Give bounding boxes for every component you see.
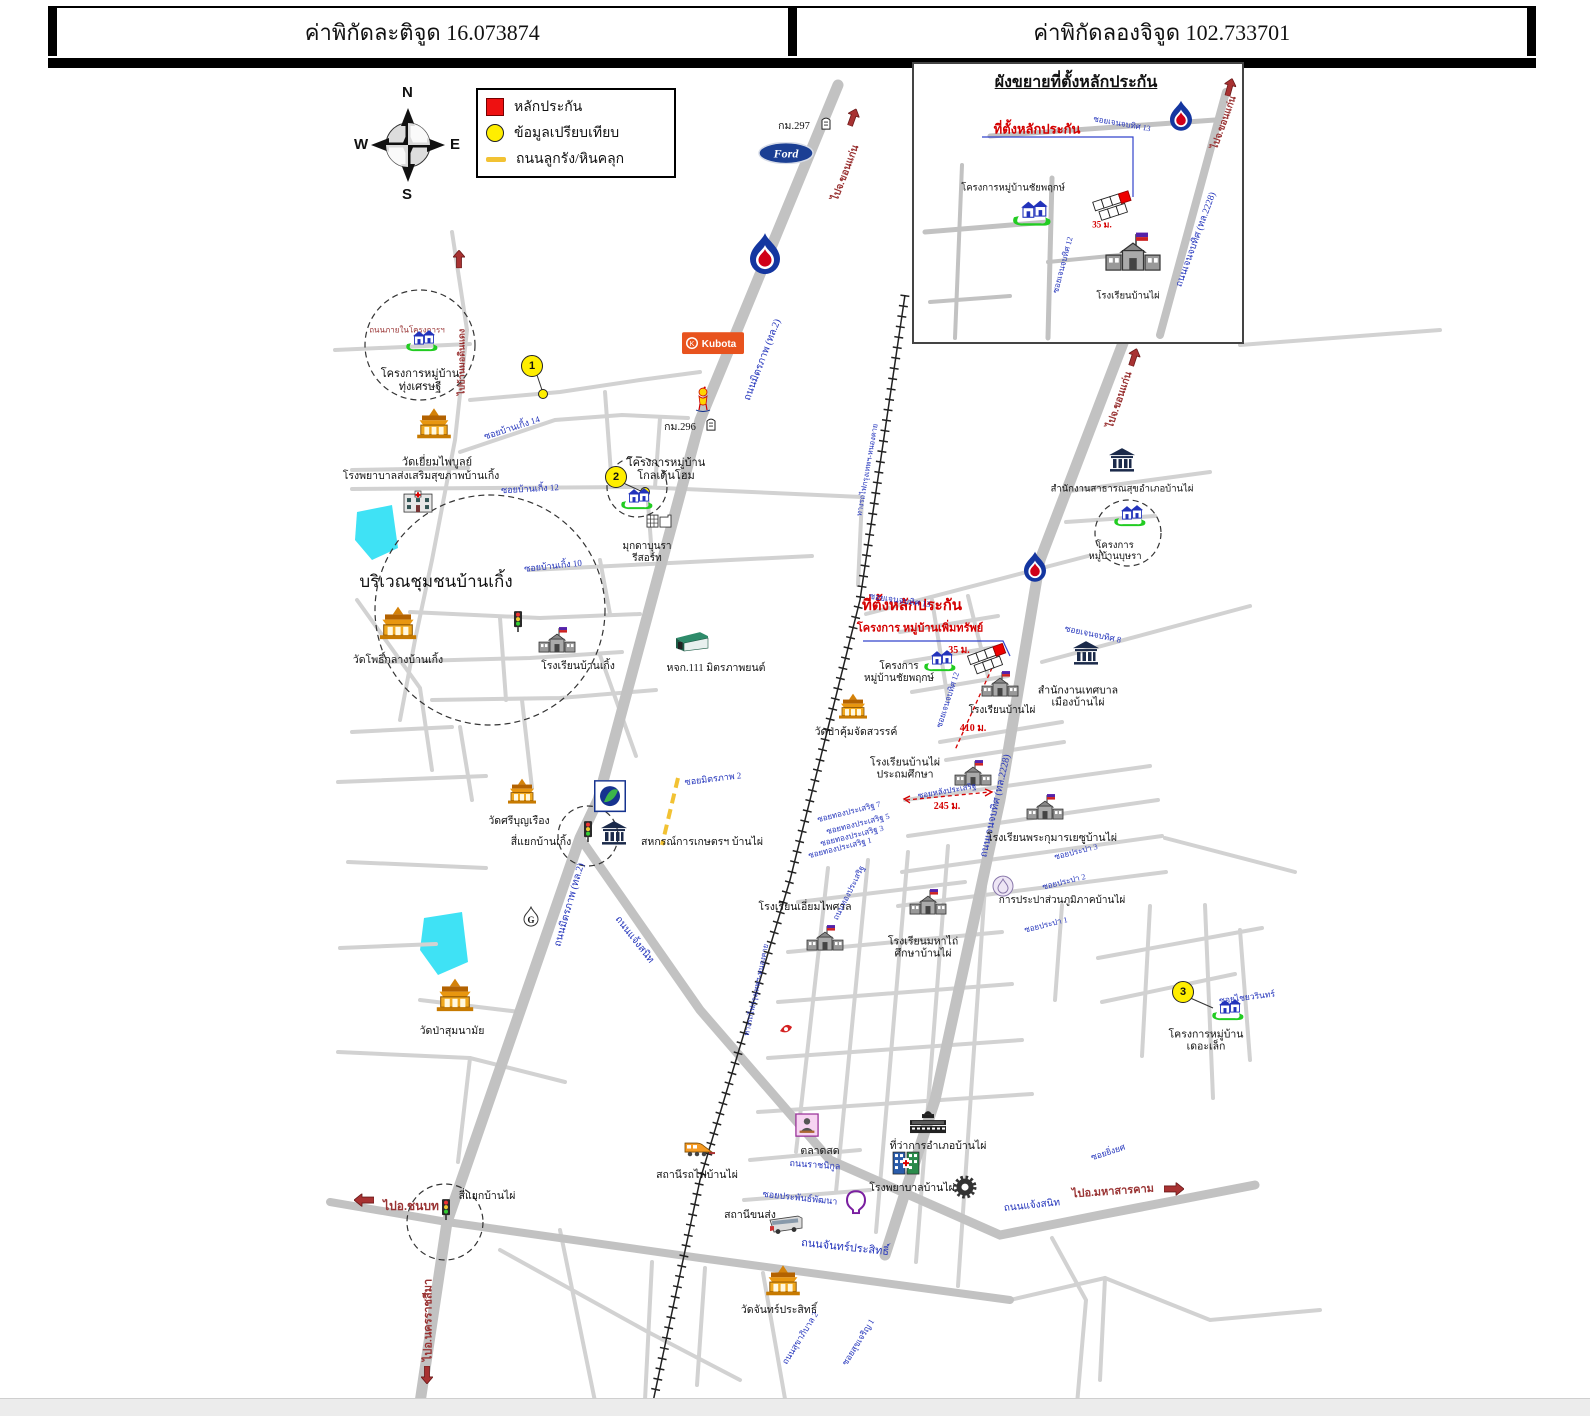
waterworks-label: การประปาส่วนภูมิภาคบ้านไผ่ [999,895,1125,907]
school-icon [980,687,1020,704]
svg-text:G: G [527,915,534,925]
inset-ptt-logo [1170,101,1192,138]
cityhosp-icon [891,1163,921,1180]
health-office-icon [1109,448,1135,478]
district-office-icon [908,1108,948,1140]
kubota-logo: KKubota [682,332,744,360]
school-prathom-label: โรงเรียนบ้านไผ่ ประถมศึกษา [870,758,940,783]
shop-icon [778,1024,794,1041]
school-icon [1025,810,1065,827]
govt-icon [908,1121,948,1138]
chanprasit-road-label: ถนนจันทร์ประสิทธิ์ [800,1237,889,1259]
g-icon: G [523,915,539,932]
factory-111-icon [674,630,710,658]
svg-text:K: K [690,341,695,348]
project-thelake-icon [1211,997,1245,1027]
coop-label: สหกรณ์การเกษตรฯ บ้านไผ่ [641,837,763,849]
km296-icon [706,417,716,437]
arrow-up [843,111,860,131]
dir-nakhonratchasima: ไปอ.นครราชสีมา [423,1279,436,1361]
temple-icon [375,625,422,647]
project-goldenhome-label: โครงการหมู่บ้าน โกลเด้นโฮม [627,457,705,483]
soi-chenchobthit-12: ซอยเจนจบทิศ 12 [935,671,962,729]
wat-yiamphaibun-label: วัดเยี่ยมไพบูลย์ [402,457,472,470]
wat-phoklang-icon [375,607,422,650]
dir-mahasarakham: ไปอ.มหาสารคาม [1072,1183,1155,1202]
rail-label-1: ทางรถไฟกรุงเทพฯ-หนองคาย [856,423,881,517]
market-label: ตลาดสด [800,1146,839,1158]
shop-logo-icon [778,1021,794,1043]
arrow-up [421,1362,433,1379]
ptt-logo-2 [1024,552,1046,589]
hospital-bankoeng-label: โรงพยาบาลส่งเสริมสุขภาพบ้านเกิ้ง [343,471,500,483]
badge-number: 3 [1180,986,1186,999]
km296-label: กม.296 [664,422,696,434]
mitraphap-road-label-2: ถนนมิตรภาพ (ทล.2) [552,862,587,948]
hospital-icon [403,501,433,518]
soi-mitraphap-2: ซอยมิตรภาพ 2 [684,770,742,787]
dist-410m: 410 ม. [960,723,987,735]
soi-bankoeng-10: ซอยบ้านเกิ้ง 10 [524,558,583,575]
school-mahathai-label: โรงเรียนมหาไถ่ ศึกษาบ้านไผ่ [888,937,958,962]
bank-icon [601,832,627,849]
temple-icon [412,425,455,445]
mitraphap-road-label-1: ถนนมิตรภาพ (ทล.2) [742,318,784,403]
wat-sumanamai-label: วัดป่าสุมนามัย [420,1026,485,1038]
inset-soi-chenchobthit-12: ซอยเจนจบทิศ 12 [1051,236,1075,294]
ford-logo: Ford [758,142,814,170]
soi-prapa-1: ซอยประปา 1 [1023,915,1068,935]
soi-bankoeng-14: ซอยบ้านเกิ้ง 14 [483,414,541,442]
arrow-right-mahasarakham [1164,1177,1184,1196]
temple-icon [504,793,540,810]
inset-project-chaiyaphruek-label: โครงการหมู่บ้านชัยพฤกษ์ [961,183,1065,194]
pea-icon [846,1201,866,1218]
school-iamphaisan-label: โรงเรียนเอี่ยมไพศาล [758,902,851,914]
traffic-light-icon [583,829,593,846]
wat-chanprasit-icon [761,1265,804,1304]
school-banphai-icon [980,670,1020,706]
wat-sumanamai-icon [432,979,479,1022]
bank-icon [1073,652,1099,669]
health-office-label: สำนักงานสาธารณสุขอำเภอบ้านไผ่ [1051,484,1194,495]
dist-245m: 245 ม. [934,801,961,813]
badge-2: 2 [605,466,627,488]
project-butsara-icon [1113,503,1147,533]
temple-icon [835,708,871,725]
project-butsara-label: โครงการ หมู่บ้านบุษรา [1088,541,1141,563]
dir-khonkaen-chenchobthit: ไปจ.ขอนแก่น [1105,370,1135,429]
school-mahathai-icon [908,888,948,924]
arrow-up-modindaeng [453,250,465,274]
kubota-logo: KKubota [682,341,744,358]
inset-chenchobthit-road-label: ถนนเจนจบทิศ (ทล.2228) [1175,191,1220,289]
banphai-junction-label: สี่แยกบ้านไผ่ [459,1191,516,1203]
purple-landmark-icon [846,1190,866,1220]
wat-phoklang-label: วัดโพธิ์กลางบ้านเกิ้ง [353,655,443,667]
badge-1: 1 [521,355,543,377]
temple-icon [432,997,479,1019]
bangchak-logo [594,799,626,816]
school-banphai-label: โรงเรียนบ้านไผ่ [969,705,1036,717]
km297-label: กม.297 [778,121,810,133]
wat-sribunruang-label: วัดศรีบุญเรือง [488,816,549,828]
project-thelake-label: โครงการหมู่บ้าน เดอะเล็ก [1169,1030,1244,1055]
inset-site-label: ที่ตั้งหลักประกัน [994,121,1081,136]
badge-number: 1 [529,360,535,373]
inset-school-label: โรงเรียนบ้านไผ่ [1096,291,1159,302]
map-page: ค่าพิกัดละติจูด 16.073874 ค่าพิกัดลองจิจ… [0,0,1590,1416]
market-icon [795,1113,819,1143]
svg-text:Kubota: Kubota [702,339,737,350]
market-icon [795,1124,819,1141]
school-icon [1103,257,1163,283]
traffic-light-icon [441,1207,451,1224]
inset-project-chaiyaphruek-icon [1012,198,1053,234]
school-iamphaisan-icon [805,924,845,960]
g-drop-icon: G [523,906,539,934]
ptt-logo-1 [750,233,780,281]
compare-dot-1 [538,389,548,399]
ptt-logo [750,262,780,279]
map-items-layer: ถนนภายในโครงการฯโครงการหมู่บ้าน ทุ่งเศรษ… [0,0,1590,1416]
traffic-light-banphai [441,1198,451,1226]
school-icon [537,643,577,660]
wat-chanprasit-label: วัดจันทร์ประสิทธิ์ [741,1305,817,1317]
bangchak-logo [594,780,626,818]
train-station-icon [683,1139,717,1165]
project-thungsetthi-icon [405,328,439,358]
houses-icon [1211,1008,1245,1025]
arrow-up [453,255,465,272]
houses-icon [1012,211,1053,231]
dir-chonnabot: ไปอ.ชนบท [383,1199,439,1213]
badge-3: 3 [1172,981,1194,1003]
soi-praphanphatthana: ซอยประพันธ์พัฒนา [762,1189,838,1207]
inset-school-icon [1103,231,1163,285]
traffic-light-community [513,610,523,638]
chicken-icon [694,399,712,416]
bankoeng-junction-label: สี่แยกบ้านเกิ้ง [511,837,572,849]
train-station-label: สถานีรถไฟบ้านไผ่ [656,1170,738,1182]
school-icon [908,905,948,922]
dir-khonkaen-mitraphap: ไปจ.ขอนแก่น [830,143,862,202]
ptt-logo-sm [1024,570,1046,587]
soi-langprasert: ซอยหลังประเสริฐ [917,781,977,801]
city-hall-icon [1073,641,1099,671]
warehouse-icon [674,639,710,656]
km297-icon [821,116,831,136]
bottom-strip [0,1398,1590,1416]
arrow-up-mitraphap [842,107,861,134]
inset-dir-khonkaen: ไปจ.ขอนแก่น [1210,95,1240,151]
school-prakuman-icon [1025,793,1065,829]
hospital-banphai-label: โรงพยาบาลบ้านไผ่ [869,1183,955,1195]
school-bankoeng-icon [537,626,577,662]
gear-icon [952,1187,978,1204]
inset-soi-chenchobthit-13: ซอยเจนจบทิศ 13 [1093,114,1152,133]
inset-35m: 35 ม. [1092,220,1111,231]
mukda-resort-label: มุกดาบุนรา รีสอร์ท [623,541,672,565]
factory-111-label: หจก.111 มิตรภาพยนต์ [667,663,766,675]
school-icon [805,941,845,958]
rail-label-2: ทางรถไฟกรุงเทพฯ-หนองคาย [743,943,771,1037]
thanon-ratchanikun: ถนนราชนิกูล [789,1158,840,1172]
school-bankoeng-label: โรงเรียนบ้านเกิ้ง [541,661,615,673]
badge-number: 2 [613,471,619,484]
houses-icon [405,339,439,356]
ford-logo: Ford [758,151,814,168]
hospital-banphai-icon [891,1150,921,1182]
train-icon [683,1146,717,1163]
traffic-light-bankoeng [583,820,593,848]
svg-text:Ford: Ford [773,147,800,161]
bank-icon [1109,459,1135,476]
dir-ban-modindaeng: ไปบ้านมอดินแดง [457,329,468,396]
community-bankoeng-label: บริเวณชุมชนบ้านเกิ้ง [359,572,512,592]
soi-sukjaroen-1: ซอยสุขเจริญ 1 [840,1317,877,1367]
soi-prapa-2: ซอยประปา 2 [1041,872,1086,892]
ptt-logo-sm [1170,119,1192,136]
thanon-sukhaphiban-2: ถนนสุขาภิบาล 2 [780,1310,820,1366]
arrow-left [354,1194,374,1211]
resort-icon [646,518,672,535]
arrow-up-chenchobthit [1124,347,1143,373]
chaengsanit-label-2: ถนนแจ้งสนิท [1003,1197,1060,1215]
arrow-left [1164,1178,1184,1195]
traffic-light-icon [513,619,523,636]
chicken-mascot-icon [694,386,712,418]
wat-khumchatsawan-icon [835,694,871,727]
houses-icon [1113,514,1147,531]
arrow-down-korat [421,1360,433,1384]
soi-bankoeng-12: ซอยบ้านเกิ้ง 12 [501,482,559,496]
wat-sribunruang-icon [504,779,540,812]
arrow-up [1124,352,1141,372]
chaengsanit-label-1: ถนนแจ้งสนิท [612,914,656,966]
school-prakuman-label: โรงเรียนพระกุมารเยซูบ้านไผ่ [987,833,1117,845]
mukda-resort-icon [646,511,672,537]
site-subtitle: โครงการ หมู่บ้านเพิ่มทรัพย์ [857,623,983,636]
wat-yiamphaibun-icon [412,408,455,447]
bus-icon [768,1223,804,1240]
wat-khumchatsawan-label: วัดป่าคุ้มจัดสวรรค์ [815,727,898,739]
city-hall-label: สำนักงานเทศบาล เมืองบ้านไผ่ [1038,686,1118,711]
hospital-bankoeng-icon [403,490,433,520]
coop-bank-icon [601,821,627,851]
project-thungsetthi-label: โครงการหมู่บ้าน ทุ่งเศรษฐี [381,368,459,394]
soi-yingyot: ซอยยิ่งยศ [1090,1142,1127,1162]
gear-logo [952,1174,978,1206]
temple-icon [761,1282,804,1302]
km-icon [706,418,716,435]
bus-station-label: สถานีขนส่ง [724,1210,776,1222]
arrow-left-chonnabot [354,1194,374,1213]
km-icon [821,117,831,134]
